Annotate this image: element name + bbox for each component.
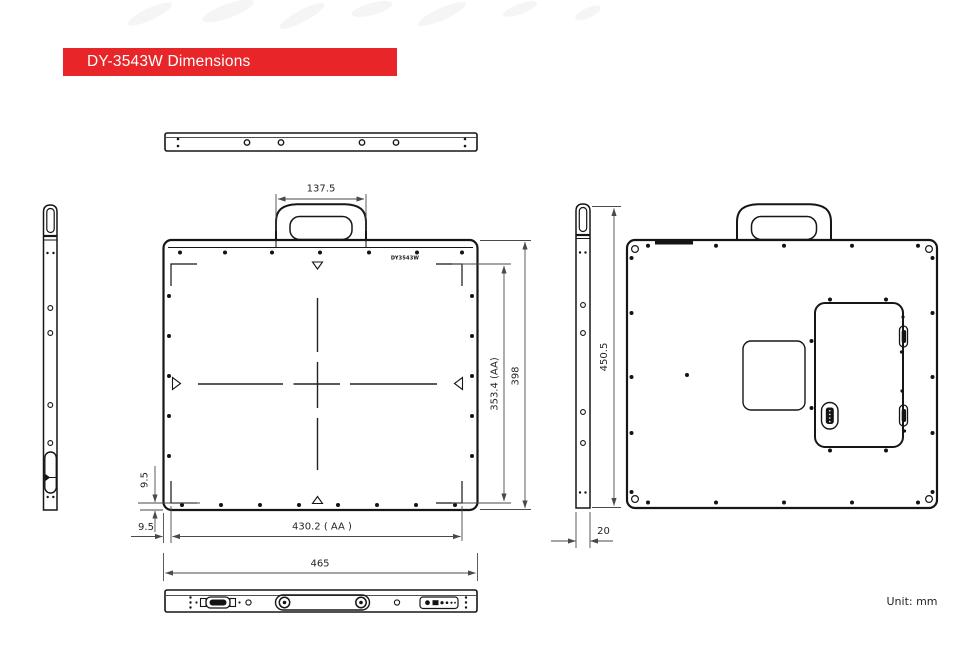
screw-dots — [167, 251, 474, 508]
screw-hole — [394, 600, 399, 605]
dim-panel-height: 398 — [511, 366, 522, 385]
model-label: DY3543W — [391, 256, 420, 262]
rear-panel-outline — [627, 240, 937, 508]
left-side-view — [44, 205, 58, 510]
screw-dots — [579, 251, 587, 493]
screw-holes — [581, 303, 586, 446]
connector-profile — [45, 452, 57, 493]
screw-dots — [630, 244, 935, 505]
dim-panel-width: 465 — [310, 559, 329, 570]
screw-dots — [46, 252, 54, 498]
slot-recess — [276, 595, 370, 610]
battery-cover — [815, 303, 903, 447]
dsub-connector — [195, 597, 240, 608]
top-view — [165, 133, 477, 151]
vent-strip — [655, 241, 693, 245]
front-handle-opening — [290, 217, 352, 240]
right-side-outline — [576, 204, 590, 508]
front-handle — [276, 204, 366, 240]
corner-holes — [632, 246, 933, 503]
latch-mark — [45, 474, 50, 481]
side-dimensions: 450.5 20 — [551, 207, 621, 549]
dim-thickness: 20 — [597, 526, 610, 537]
screw-dots — [177, 138, 467, 148]
front-view: DY3543W — [164, 204, 478, 510]
top-view-outline — [165, 133, 477, 151]
watermark-smudges — [126, 0, 603, 33]
screw-holes — [48, 306, 53, 446]
screw-holes — [244, 140, 398, 145]
dim-aa-offset-vertical: 9.5 — [140, 472, 151, 488]
indicator-window — [420, 597, 458, 609]
center-crosshair — [198, 298, 437, 470]
bottom-view — [165, 590, 477, 612]
handle-profile — [579, 208, 586, 232]
rear-view — [627, 204, 937, 508]
dim-active-area-width: 430.2 ( AA ) — [292, 522, 352, 533]
unit-label: Unit: mm — [886, 595, 937, 608]
left-side-outline — [44, 205, 58, 510]
battery-connector — [822, 403, 839, 430]
dimension-drawing: DY3543W 137.5 398 353.4 (AA) 9.5 9.5 430… — [0, 0, 970, 665]
dim-active-area-height: 353.4 (AA) — [490, 357, 501, 411]
dim-aa-offset-horizontal: 9.5 — [138, 522, 154, 533]
drawing-sheet: DY-3543W Dimensions — [0, 0, 970, 665]
label-recess — [743, 341, 805, 410]
screw-hole — [246, 600, 251, 605]
dim-handle-width: 137.5 — [307, 184, 336, 195]
rear-handle-opening — [752, 217, 817, 240]
rear-handle — [737, 204, 831, 240]
front-dimensions: 137.5 398 353.4 (AA) 9.5 9.5 430.2 ( AA … — [131, 184, 531, 582]
dim-rear-height: 450.5 — [599, 343, 610, 372]
front-panel-outline — [164, 240, 478, 510]
handle-profile — [47, 209, 54, 233]
right-side-view — [576, 204, 590, 508]
battery-cover-screws — [810, 298, 907, 453]
